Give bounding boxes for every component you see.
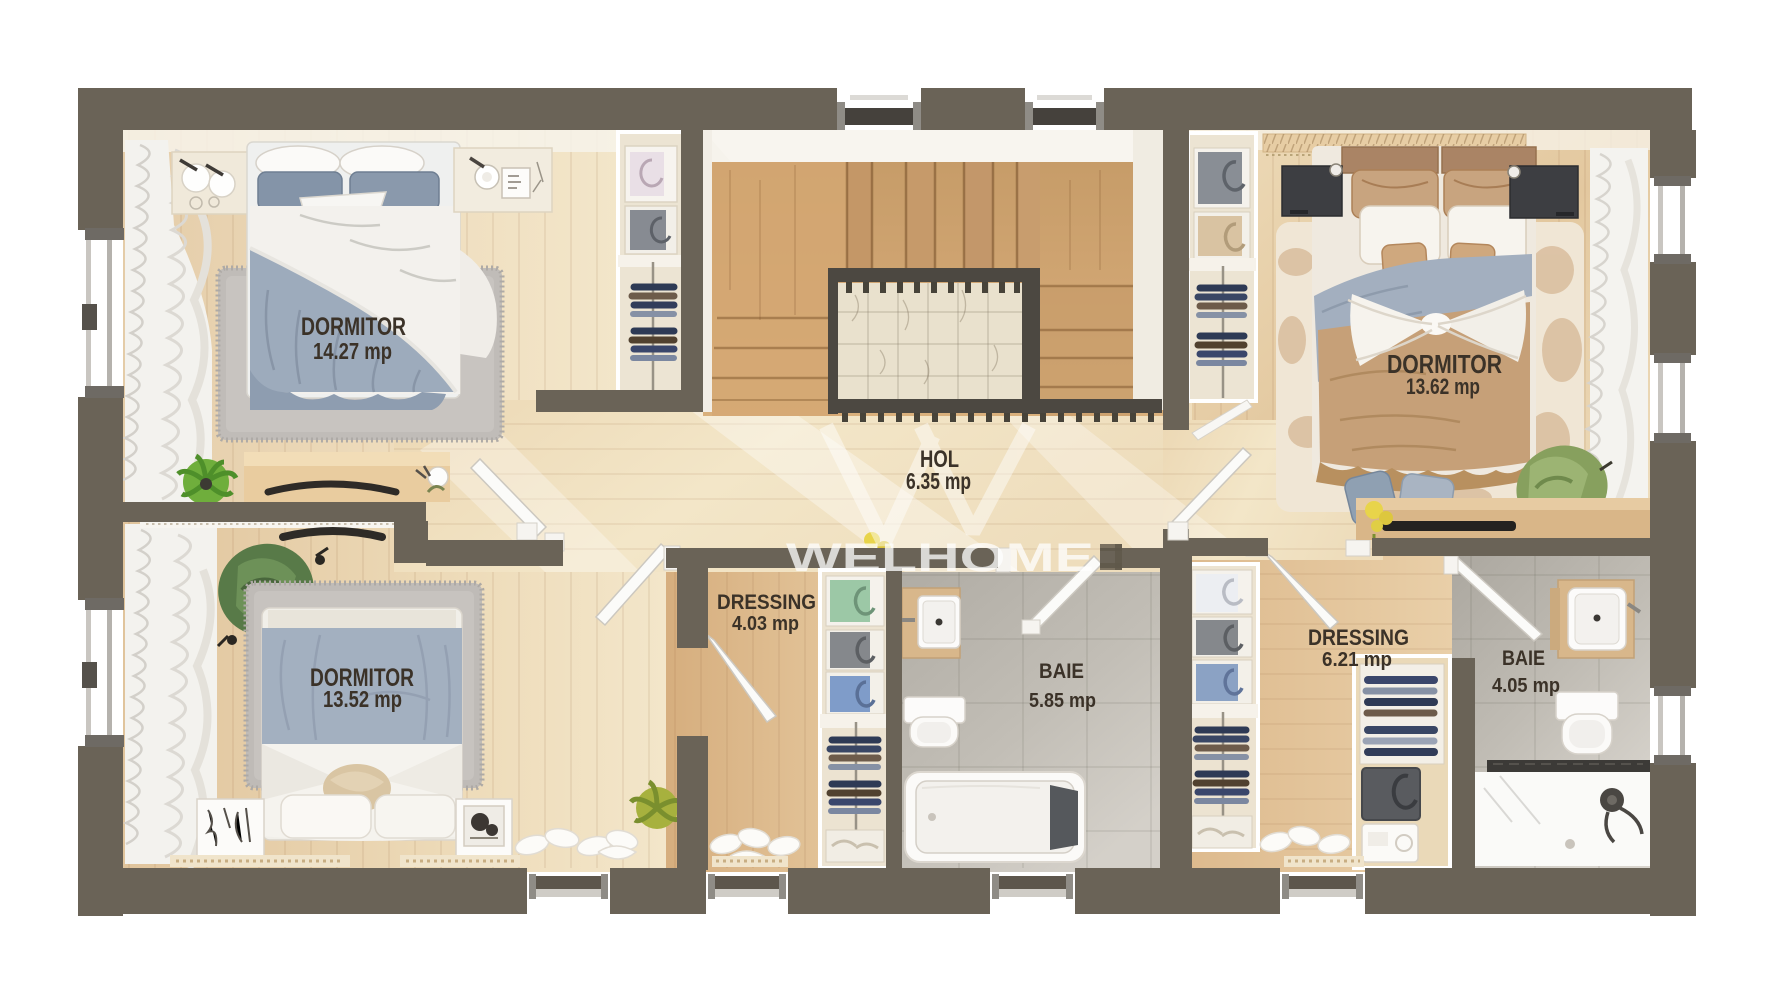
svg-text:WELHOME: WELHOME	[786, 536, 1094, 580]
svg-text:DRESSING: DRESSING	[1308, 625, 1409, 650]
svg-text:5.85 mp: 5.85 mp	[1029, 690, 1096, 712]
svg-text:13.62 mp: 13.62 mp	[1406, 374, 1480, 399]
svg-text:4.03 mp: 4.03 mp	[732, 613, 799, 635]
svg-text:4.05 mp: 4.05 mp	[1492, 675, 1560, 697]
svg-text:6.21 mp: 6.21 mp	[1322, 649, 1392, 671]
svg-text:DORMITOR: DORMITOR	[301, 313, 406, 341]
svg-text:BAIE: BAIE	[1502, 647, 1545, 670]
svg-text:DRESSING: DRESSING	[717, 591, 816, 614]
svg-text:13.52 mp: 13.52 mp	[323, 686, 402, 712]
svg-text:6.35 mp: 6.35 mp	[906, 468, 971, 494]
svg-text:14.27 mp: 14.27 mp	[313, 338, 392, 364]
svg-text:BAIE: BAIE	[1039, 660, 1084, 683]
